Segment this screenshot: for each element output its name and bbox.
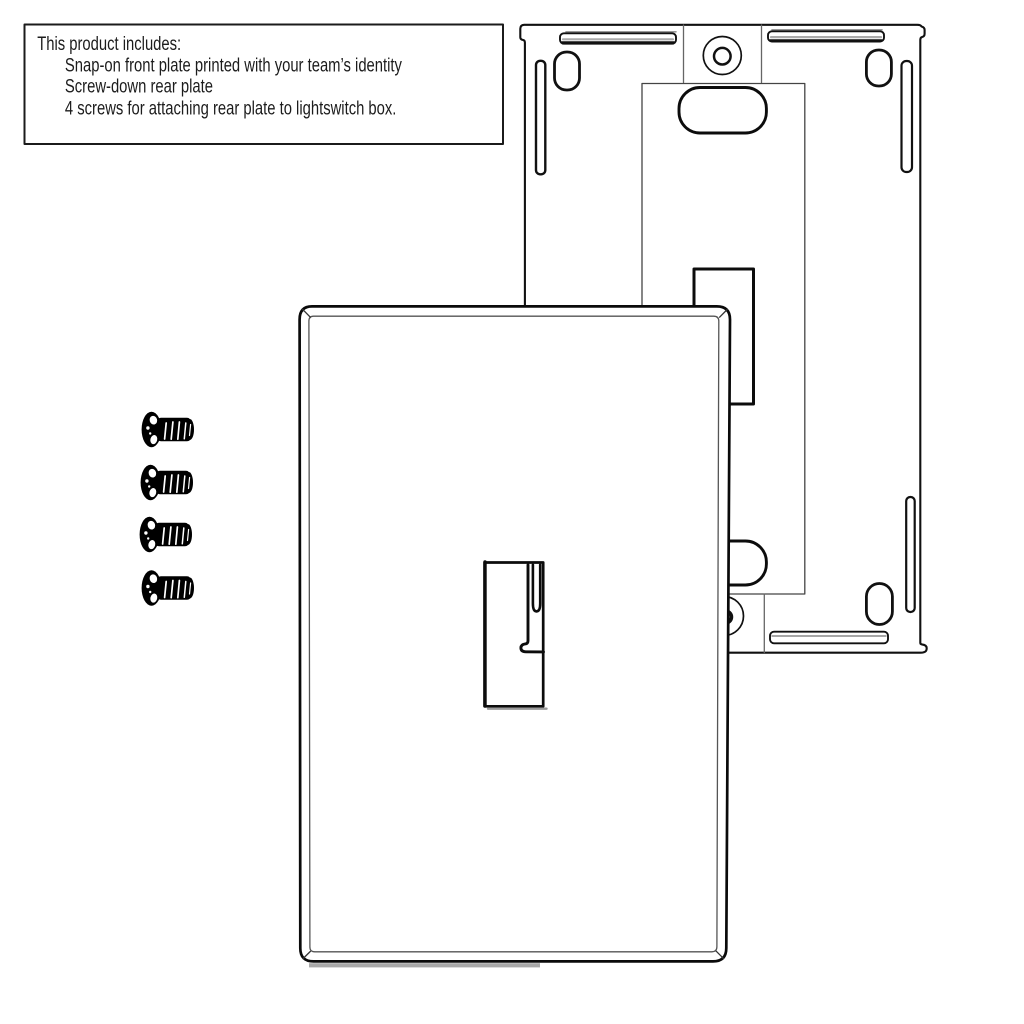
svg-text:This product includes:: This product includes: (37, 33, 181, 54)
svg-text:Snap-on front plate printed wi: Snap-on front plate printed with your te… (65, 55, 402, 76)
svg-text:Screw-down rear plate: Screw-down rear plate (65, 76, 213, 97)
svg-text:4 screws for attaching rear pl: 4 screws for attaching rear plate to lig… (65, 98, 397, 119)
